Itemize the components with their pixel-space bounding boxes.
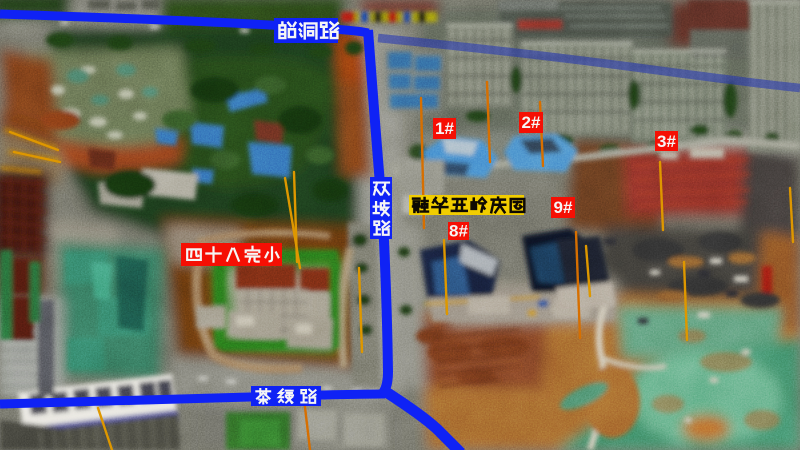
svg-text:8#: 8# [449,222,468,241]
svg-text:9#: 9# [554,198,573,217]
svg-text:1#: 1# [435,119,454,138]
svg-text:3#: 3# [657,132,676,151]
svg-text:2#: 2# [522,113,541,132]
